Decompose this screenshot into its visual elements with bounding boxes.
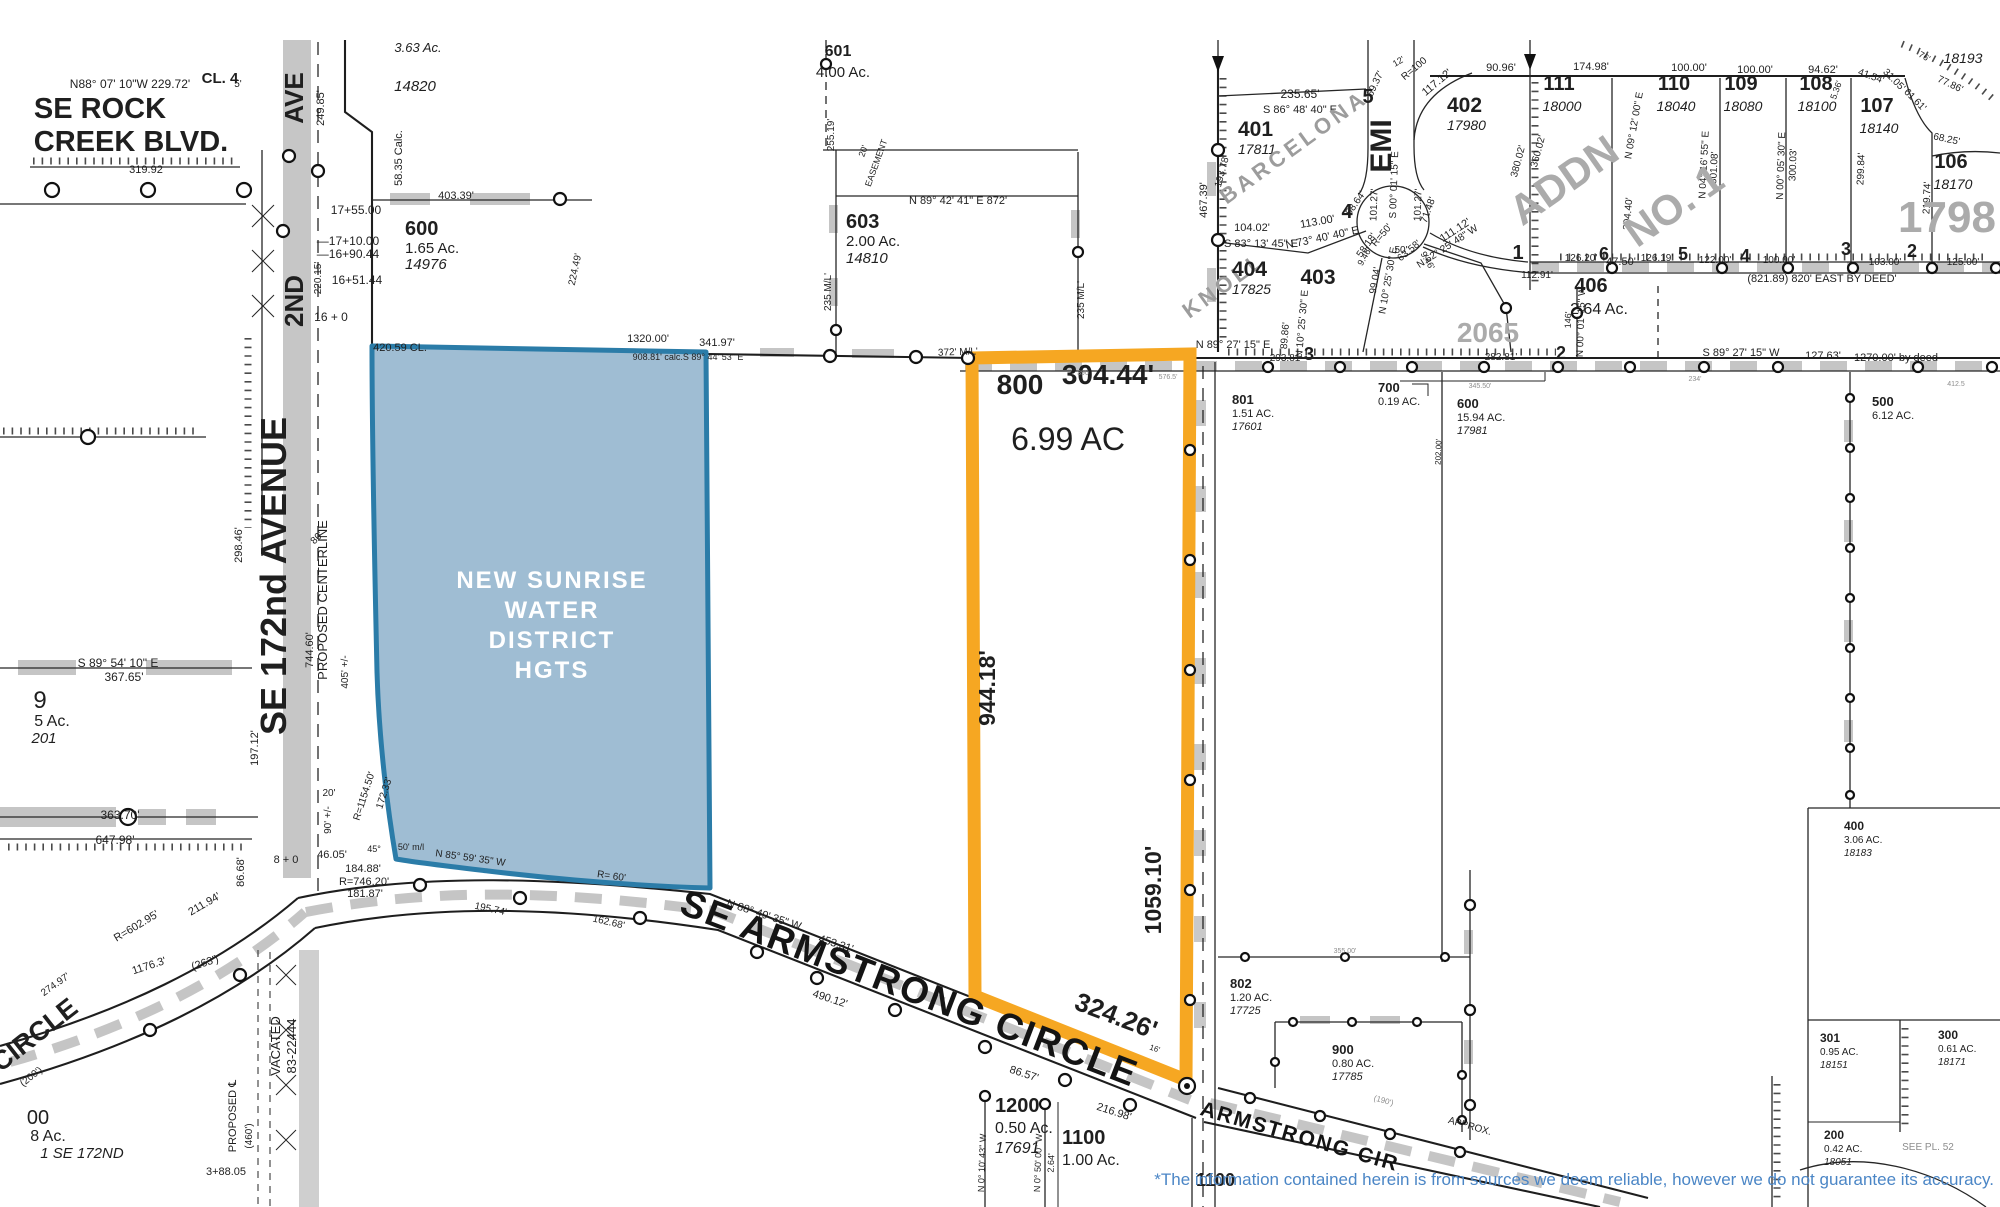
lot-300-area: 0.61 AC.	[1938, 1044, 1976, 1055]
note: SEE PL. 52	[1902, 1142, 1954, 1153]
dim: 94.62'	[1808, 64, 1838, 76]
dim: 113.00'	[1299, 213, 1335, 231]
note-vacated-id: 83-22444	[284, 1019, 299, 1074]
lot-400-id: 18183	[1844, 848, 1872, 859]
block-4b: 4	[1740, 246, 1750, 266]
lot-400-number: 400	[1844, 819, 1864, 833]
lot-603-number: 603	[846, 211, 879, 233]
lot-600b-id: 17981	[1457, 425, 1488, 437]
dim: 412.5	[1947, 381, 1965, 388]
lot-frag: 5 Ac.	[34, 713, 70, 730]
lot-200-area: 0.42 AC.	[1824, 1144, 1862, 1155]
lot-402-number: 402	[1447, 94, 1482, 117]
dim: 20'	[856, 143, 870, 158]
dim: 235 M/L'	[823, 273, 834, 311]
block-1: 1	[1512, 242, 1523, 264]
lot-1100-area: 1.00 Ac.	[1062, 1152, 1120, 1169]
dim: 41.54'	[1856, 67, 1885, 87]
dim: (460')	[244, 1123, 255, 1148]
dim: 211.94'	[186, 890, 222, 918]
dim: 367.65'	[105, 670, 144, 684]
bearing: N 09° 12' 00" E	[1623, 91, 1646, 160]
lot-400-area: 3.06 AC.	[1844, 835, 1882, 846]
lot-1100-number: 1100	[1062, 1127, 1105, 1149]
dim: 100.00'	[1737, 64, 1773, 76]
dim: 104.02'	[1234, 222, 1270, 234]
lot-600-id: 14976	[405, 256, 447, 273]
dim: 405' +/-	[340, 655, 351, 688]
dim: 647.98'	[96, 833, 135, 847]
plat-addn: ADDN	[1501, 126, 1627, 234]
lot-403-number: 403	[1300, 266, 1335, 289]
note: 1270.00' by deed	[1854, 352, 1938, 364]
dim: 1176.3'	[131, 955, 168, 977]
lot-111-id: 18000	[1543, 98, 1582, 114]
lot-301-id: 18151	[1820, 1060, 1848, 1071]
dim: 341.97'	[699, 337, 735, 349]
lot-601-number: 601	[825, 43, 852, 60]
lot-1200-number: 1200	[995, 1095, 1040, 1117]
dim: 908.81' calc.S 89° 44' 53" E	[633, 352, 744, 362]
district-line-3: DISTRICT	[489, 627, 616, 654]
dim: 355.00'	[1334, 948, 1357, 955]
dim: 249.85'	[315, 90, 327, 126]
dim: 181.87'	[347, 888, 383, 900]
station: 8 + 0	[274, 854, 299, 866]
dim: (263')	[190, 953, 220, 973]
dim: 126.20'	[1565, 253, 1598, 264]
lot-802-id: 17725	[1230, 1005, 1261, 1017]
lot-id: 18193	[1944, 50, 1983, 66]
lot-200-id: 18051	[1824, 1157, 1852, 1168]
lot-108-number: 108	[1799, 73, 1832, 95]
lot-700-area: 0.19 AC.	[1378, 396, 1420, 408]
block-2c: 2	[1556, 343, 1566, 363]
lot-110-id: 18040	[1657, 98, 1696, 114]
lot-109-number: 109	[1724, 73, 1757, 95]
dim: 77.86'	[1936, 74, 1965, 95]
plat-2065: 2065	[1457, 317, 1519, 348]
dim: 282.81'	[1485, 352, 1518, 363]
block-4: 4	[1341, 201, 1353, 223]
station: 16+51.44	[332, 273, 383, 287]
dim: 490.12'	[811, 988, 849, 1010]
lot-500-area: 6.12 AC.	[1872, 410, 1914, 422]
dim: 380.02'	[1509, 144, 1528, 178]
district-line-1: NEW SUNRISE	[456, 567, 647, 594]
dim: 300.03'	[1787, 148, 1799, 181]
lot-110-number: 110	[1658, 73, 1690, 95]
dim: (200')	[18, 1065, 45, 1089]
note-vacated: VACATED	[268, 1016, 283, 1075]
lot-500-number: 500	[1872, 394, 1894, 409]
block-6: 6	[1599, 244, 1609, 264]
street-circle: CIRCLE	[0, 992, 83, 1078]
lot-id: 14820	[394, 78, 436, 95]
dim: 202.00'	[1434, 438, 1444, 465]
lot-802-area: 1.20 AC.	[1230, 992, 1272, 1004]
dim: 16'	[1148, 1043, 1161, 1055]
disclaimer-text: *The information contained herein is fro…	[1154, 1170, 1994, 1190]
lot-301-area: 0.95 AC.	[1820, 1047, 1858, 1058]
plat-1798: 1798	[1898, 193, 1996, 242]
dim: 274.97'	[39, 971, 72, 999]
dim: 224.49'	[567, 252, 585, 286]
dim: 100.00'	[1671, 62, 1707, 74]
dim: 86.57'	[1008, 1064, 1040, 1085]
street-ave: AVE	[279, 72, 309, 124]
lot-301-number: 301	[1820, 1031, 1840, 1045]
lot-801-id: 17601	[1232, 421, 1263, 433]
bearing: N 89° 42' 41" E 872'	[909, 195, 1007, 207]
dim: 31.05'	[1880, 67, 1907, 94]
lot-401-number: 401	[1238, 118, 1273, 141]
street-2nd: 2ND	[279, 275, 309, 327]
dim: 576.5'	[1159, 374, 1178, 381]
lot-402-id: 17980	[1447, 117, 1486, 133]
dim: 146'	[1563, 311, 1574, 328]
lot-frag: 1 SE 172ND	[40, 1145, 124, 1162]
lot-603-id: 14810	[846, 250, 888, 267]
lot-107-id: 18140	[1860, 120, 1899, 136]
lot-404-id: 17825	[1232, 281, 1271, 297]
dim: 101.27'	[1368, 188, 1380, 221]
dim: 122.00'	[1699, 255, 1732, 266]
lot-601-area: 4.00 Ac.	[816, 64, 870, 81]
dim: 390	[1077, 370, 1089, 377]
dim: 420.59 CL.	[373, 342, 427, 354]
dim: 86.68'	[235, 857, 247, 887]
lot-frag: 201	[30, 730, 56, 747]
dim: 68.25'	[1932, 131, 1961, 147]
dim: 5'	[234, 79, 242, 90]
dim: 58.35 Calc.	[393, 130, 405, 186]
dim: 90' +/-	[323, 806, 334, 834]
street-se-172nd: SE 172nd AVENUE	[253, 417, 294, 735]
dim: 235.65'	[1281, 87, 1320, 101]
lot-900-number: 900	[1332, 1042, 1354, 1057]
dim: 298.46'	[233, 527, 245, 563]
lot-404-number: 404	[1232, 258, 1267, 281]
lot-603-area: 2.00 Ac.	[846, 233, 900, 250]
lot-106-number: 106	[1934, 151, 1967, 173]
dim: 299.84'	[1855, 152, 1867, 185]
note-deed: (821.89) 820' EAST BY DEED'	[1747, 273, 1896, 285]
lot-600b-area: 15.94 AC.	[1457, 412, 1505, 424]
station: —16+90.44	[317, 247, 380, 261]
dim: 1320.00'	[627, 333, 669, 345]
lot-600b-number: 600	[1457, 396, 1479, 411]
dim: 184.88'	[345, 863, 381, 875]
dim: 197.12'	[249, 730, 261, 766]
station: 16 + 0	[314, 310, 348, 324]
dim: 103.00'	[1869, 257, 1902, 268]
dim: 2.64'	[1046, 1153, 1057, 1173]
lot-111-number: 111	[1543, 73, 1574, 95]
bearing: S 00° 01' 15" E	[1388, 151, 1401, 219]
bearing: S 89° 54' 10" E	[78, 656, 159, 670]
dim: 467.39'	[1198, 182, 1210, 218]
station: —17+10.00	[317, 234, 380, 248]
dim: 744.60'	[304, 632, 316, 668]
subject-dim-west: 944.18'	[974, 650, 1000, 726]
dim: 61.61'	[1901, 87, 1928, 114]
lot-900-area: 0.80 AC.	[1332, 1058, 1374, 1070]
lot-200-number: 200	[1824, 1128, 1844, 1142]
lot-600-number: 600	[405, 218, 438, 240]
station: 17+55.00	[331, 203, 382, 217]
dim: 100.00'	[1763, 255, 1796, 266]
dim: 234'	[1688, 376, 1701, 383]
lot-801-area: 1.51 AC.	[1232, 408, 1274, 420]
subject-lot-number: 800	[997, 369, 1044, 400]
dim: 127.63'	[1805, 350, 1841, 362]
note-proposed: PROPOSED ℄	[227, 1080, 239, 1152]
dim: 112.91'	[1521, 270, 1553, 281]
lot-600-area: 1.65 Ac.	[405, 240, 459, 257]
subject-dim-north: 304.44'	[1062, 359, 1154, 390]
lot-109-id: 18080	[1724, 98, 1763, 114]
lot-107-number: 107	[1860, 95, 1893, 117]
lot-300-id: 18171	[1938, 1057, 1966, 1068]
block-2b: 2	[1907, 241, 1917, 261]
dim: 235 M/L'	[1076, 281, 1087, 319]
subject-area: 6.99 AC	[1011, 421, 1125, 457]
dim: 162.68'	[591, 914, 625, 932]
dim: 12'	[1391, 54, 1406, 69]
lot-802-number: 802	[1230, 976, 1252, 991]
plat-map-page: N88° 07' 10"W 229.72'SE ROCKCREEK BLVD.C…	[0, 0, 2000, 1207]
bearing: N 00° 01' 15" W	[1575, 286, 1588, 358]
dim: 255.19'	[826, 119, 837, 152]
lot-300-number: 300	[1938, 1028, 1958, 1042]
dim: 46.05'	[317, 849, 347, 861]
dim: 20'	[322, 788, 335, 799]
bearing: S 89° 27' 15" W	[1702, 347, 1780, 359]
subject-dim-east: 1059.10'	[1140, 846, 1166, 935]
dim: 220.15'	[313, 262, 324, 295]
dim: 195.74'	[473, 901, 507, 919]
dim: R=602.95'	[112, 908, 161, 944]
lot-108-id: 18100	[1798, 98, 1837, 114]
dim: 125.00'	[1947, 257, 1980, 268]
survey-monuments	[45, 59, 2000, 1157]
lot-frag: 8 Ac.	[30, 1128, 66, 1145]
bearing: N 89° 27' 15" E	[1196, 339, 1271, 351]
block-5b: 5	[1678, 244, 1688, 264]
station: 3+88.05	[206, 1166, 246, 1178]
dim: 89.86'	[1279, 322, 1292, 350]
dim: R=1154.50'	[352, 770, 378, 821]
bearing: N88° 07' 10"W 229.72'	[70, 77, 190, 91]
dim: 47.50'	[1606, 256, 1636, 268]
dim: 50' m/l	[398, 842, 424, 852]
bearing: N 0° 50' 00" W	[1032, 1133, 1044, 1192]
lot-frag: 00	[27, 1107, 49, 1129]
district-line-4: HGTS	[515, 657, 590, 684]
dim: 403.39'	[438, 190, 474, 202]
lot-1200-area: 0.50 Ac.	[995, 1120, 1053, 1137]
lot-frag: 3.63 Ac.	[394, 40, 441, 55]
lot-106-id: 18170	[1934, 176, 1973, 192]
lot-frag: 9	[33, 687, 46, 714]
subject-parcel-outline	[972, 354, 1190, 1080]
block-3b: 3	[1841, 239, 1851, 259]
dim: 372' M/L'	[938, 346, 978, 358]
dim: 45°	[367, 844, 381, 854]
dim: 174.98'	[1573, 61, 1609, 73]
plat-map: N88° 07' 10"W 229.72'SE ROCKCREEK BLVD.C…	[0, 0, 2000, 1207]
dim: 319.92	[129, 164, 163, 176]
plat-no1: NO. 1	[1615, 154, 1732, 255]
lot-801-number: 801	[1232, 392, 1254, 407]
dim: 363.70'	[101, 808, 140, 822]
street-se-rock: SE ROCK	[34, 93, 166, 125]
lot-900-id: 17785	[1332, 1071, 1363, 1083]
dim: 345.50'	[1469, 383, 1492, 390]
district-line-2: WATER	[505, 597, 600, 624]
bearing: N 0° 10' 43" W	[976, 1133, 988, 1192]
dim: (190')	[1373, 1093, 1395, 1107]
note: EASEMENT	[863, 138, 890, 188]
street-creek-blvd: CREEK BLVD.	[34, 126, 228, 158]
dim: 90.96'	[1486, 62, 1516, 74]
dim: R=746.20'	[339, 876, 389, 888]
lot-700-number: 700	[1378, 380, 1400, 395]
dim: 126.19'	[1641, 253, 1674, 264]
